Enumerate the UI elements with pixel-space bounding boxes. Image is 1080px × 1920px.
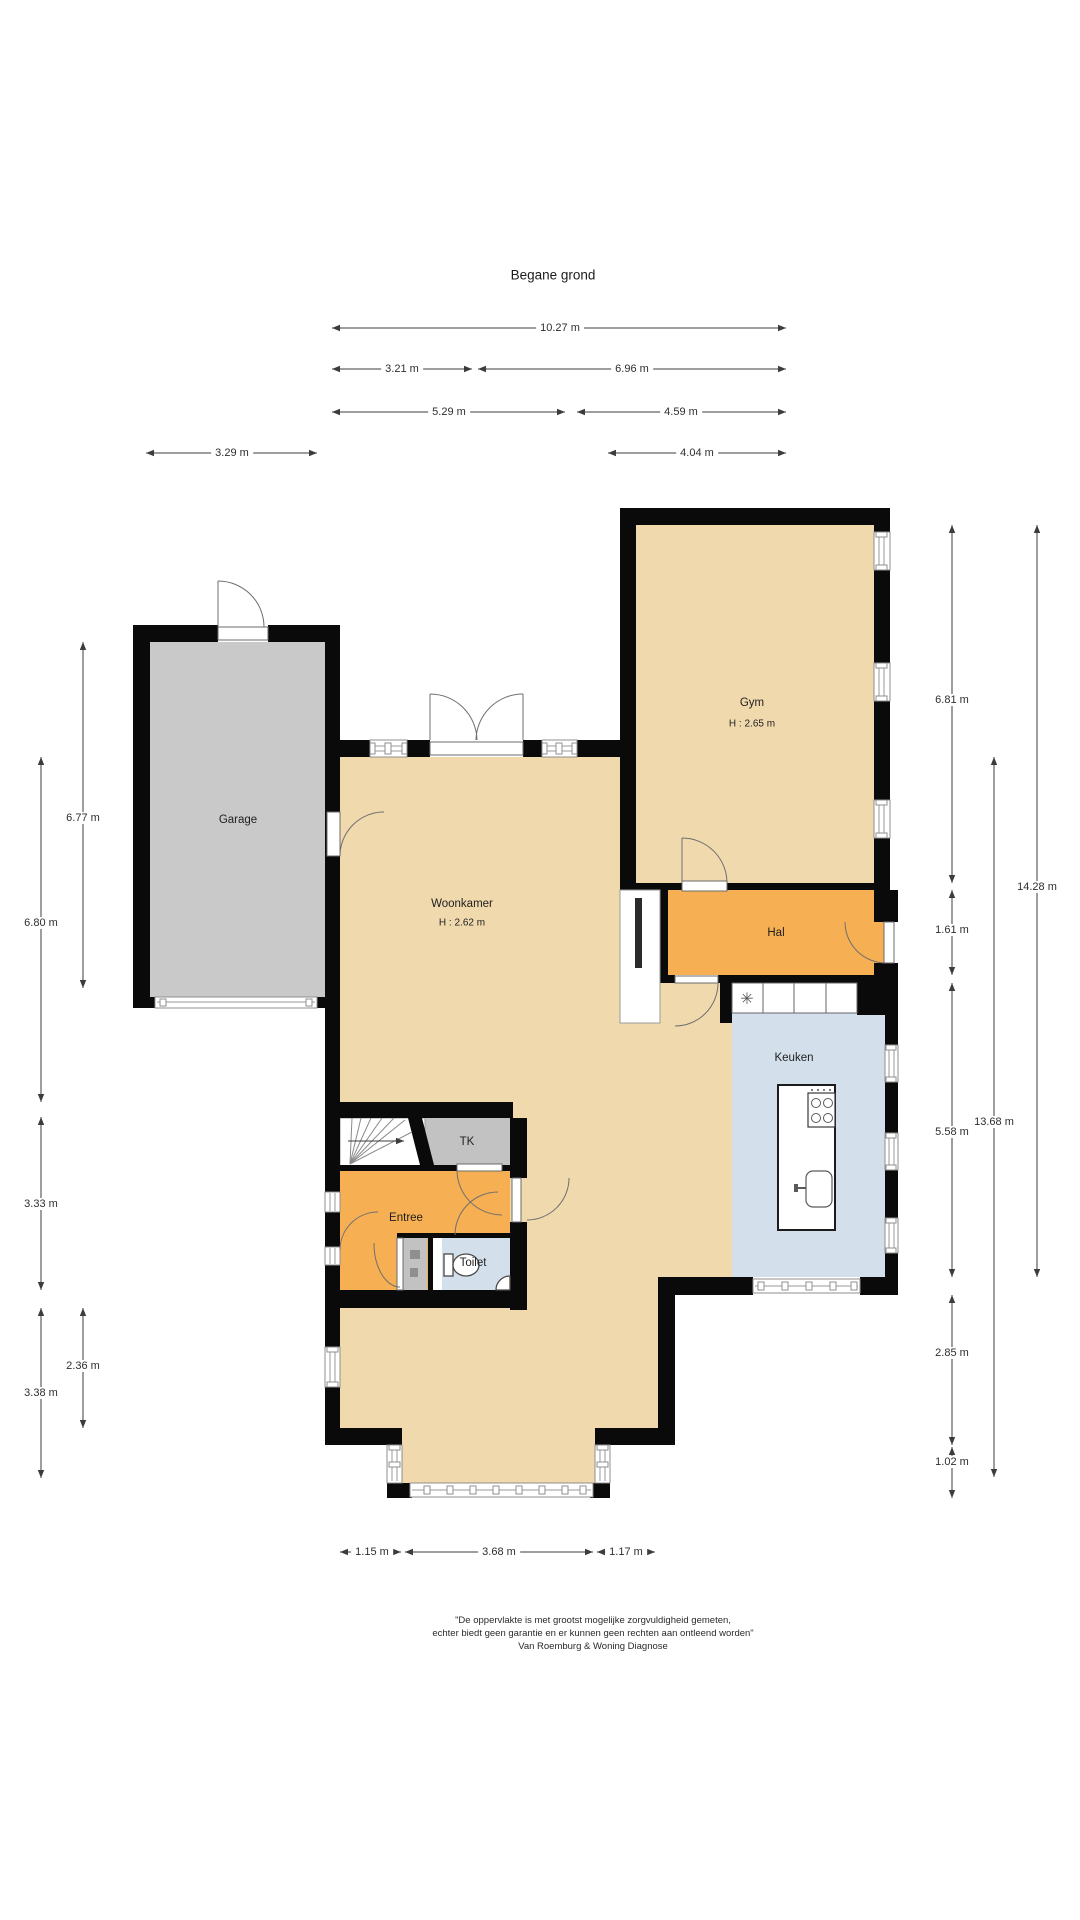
dim-width-right: 6.96 m: [611, 363, 653, 375]
room-woonkamer-floor-2: [340, 883, 620, 1102]
dim-height-right-total: 14.28 m: [1013, 881, 1061, 893]
window-bay-bottom: [410, 1483, 593, 1497]
window: [325, 1247, 340, 1265]
disclaimer-line-3: Van Roemburg & Woning Diagnose: [432, 1640, 753, 1653]
window: [325, 1347, 340, 1387]
window: [387, 1445, 402, 1483]
dim-bottom-right: 1.17 m: [605, 1546, 647, 1558]
dim-height-right-inner: 13.68 m: [970, 1116, 1018, 1128]
french-door-arc-left: [430, 694, 477, 740]
dim-width-total: 10.27 m: [536, 322, 584, 334]
window: [325, 1192, 340, 1212]
dim-height-lower-right: 2.85 m: [931, 1347, 973, 1359]
dim-height-entree: 3.33 m: [20, 1198, 62, 1210]
floorplan-page: ✳: [0, 0, 1080, 1920]
disclaimer-line-2: echter biedt geen garantie en er kunnen …: [432, 1627, 753, 1640]
dim-height-bay-left: 2.36 m: [62, 1360, 104, 1372]
dim-bottom-mid: 3.68 m: [478, 1546, 520, 1558]
dim-height-gym: 6.81 m: [931, 694, 973, 706]
garage-door: [155, 997, 317, 1008]
room-label-toilet: Toilet: [460, 1257, 487, 1269]
french-door-sill: [430, 742, 523, 755]
utility-item: [410, 1268, 418, 1277]
column-cabinet: [620, 890, 660, 1023]
room-label-gym: Gym: [740, 697, 764, 709]
french-door-arc-right: [476, 694, 523, 740]
disclaimer-line-1: "De oppervlakte is met grootst mogelijke…: [432, 1614, 753, 1627]
window: [874, 532, 890, 570]
window: [885, 1133, 898, 1170]
boiler-icon: ✳: [740, 991, 753, 1008]
window: [874, 663, 890, 701]
dim-height-bay-right: 1.02 m: [931, 1456, 973, 1468]
toilet-door-leaf: [397, 1238, 403, 1290]
toilet-lobby: [433, 1238, 442, 1290]
dim-height-bottom-left: 3.38 m: [20, 1387, 62, 1399]
garage-side-door-leaf: [218, 627, 268, 640]
window: [542, 740, 577, 757]
room-woonkamer-floor-3: [620, 1023, 660, 1102]
window: [874, 800, 890, 838]
kitchen-island: [778, 1085, 835, 1230]
room-woonkamer-floor: [340, 757, 620, 883]
window: [885, 1045, 898, 1082]
utility-item: [410, 1250, 420, 1259]
room-label-hal: Hal: [767, 927, 784, 939]
room-height-woonkamer: H : 2.62 m: [439, 918, 485, 929]
dim-width-hal: 4.04 m: [676, 447, 718, 459]
room-label-entree: Entree: [389, 1212, 423, 1224]
garage-woonkamer-door-leaf: [327, 812, 340, 856]
dim-width-garage: 3.29 m: [211, 447, 253, 459]
window: [885, 1218, 898, 1253]
room-label-keuken: Keuken: [774, 1052, 813, 1064]
room-woonkamer-bay-floor: [387, 1428, 610, 1483]
dim-width-woonkamer: 5.29 m: [428, 406, 470, 418]
sink: [806, 1171, 832, 1207]
gym-door-leaf: [682, 881, 727, 891]
room-label-tk: TK: [460, 1136, 475, 1148]
page-title: Begane grond: [511, 268, 596, 283]
kitchen-counter: ✳: [732, 983, 857, 1013]
window: [753, 1279, 860, 1293]
dim-width-left: 3.21 m: [381, 363, 423, 375]
room-height-gym: H : 2.65 m: [729, 719, 775, 730]
disclaimer: "De oppervlakte is met grootst mogelijke…: [432, 1614, 753, 1653]
room-label-garage: Garage: [219, 814, 257, 826]
dim-width-gym: 4.59 m: [660, 406, 702, 418]
window: [370, 740, 407, 757]
tk-door-leaf: [457, 1164, 502, 1171]
entree-woonkamer-door-leaf: [512, 1178, 521, 1222]
toilet-tank: [444, 1254, 453, 1276]
utility-strip: [403, 1238, 427, 1290]
garage-side-door-arc: [218, 581, 264, 627]
window: [595, 1445, 610, 1483]
dim-height-woonkamer-left: 6.80 m: [20, 917, 62, 929]
dim-height-keuken: 5.58 m: [931, 1126, 973, 1138]
dim-height-garage: 6.77 m: [62, 812, 104, 824]
front-door-leaf: [884, 922, 894, 963]
room-label-woonkamer: Woonkamer: [431, 898, 493, 910]
dim-bottom-left: 1.15 m: [351, 1546, 393, 1558]
hal-woonkamer-door-leaf: [675, 976, 718, 983]
dim-height-hal: 1.61 m: [931, 924, 973, 936]
